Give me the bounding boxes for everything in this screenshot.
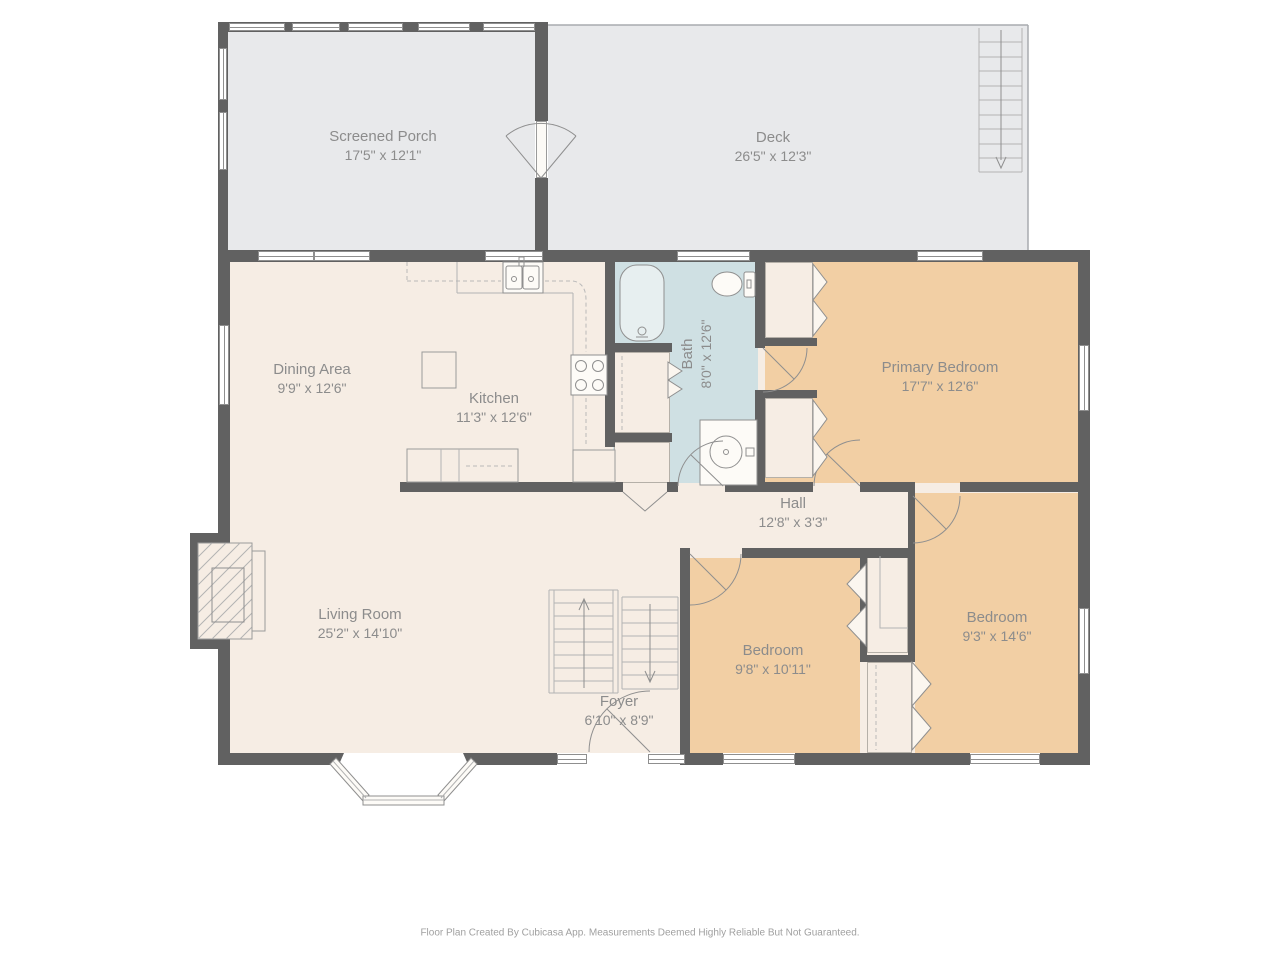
hall-opening-mark (623, 492, 667, 511)
bathroom-sink-icon (700, 420, 757, 485)
label-bedroom-right: Bedroom 9'3" x 14'6" (963, 608, 1032, 646)
room-dims: 8'0" x 12'6" (697, 320, 716, 389)
label-living-room: Living Room 25'2" x 14'10" (318, 605, 403, 643)
room-dims: 25'2" x 14'10" (318, 624, 403, 643)
vestibule-door-swing (763, 348, 807, 392)
room-dims: 17'7" x 12'6" (882, 377, 999, 396)
room-name: Bath (678, 320, 697, 389)
stove-icon (571, 355, 607, 395)
room-name: Bedroom (963, 608, 1032, 627)
room-dims: 9'8" x 10'11" (735, 660, 811, 679)
closet-shelf (880, 556, 908, 628)
label-dining: Dining Area 9'9" x 12'6" (273, 360, 351, 398)
room-name: Primary Bedroom (882, 358, 999, 377)
room-name: Hall (759, 494, 828, 513)
label-deck: Deck 26'5" x 12'3" (735, 128, 812, 166)
toilet-icon (712, 272, 755, 297)
room-name: Living Room (318, 605, 403, 624)
symbols-layer (0, 0, 1280, 960)
room-dims: 26'5" x 12'3" (735, 147, 812, 166)
room-dims: 9'9" x 12'6" (273, 379, 351, 398)
room-name: Bedroom (735, 641, 811, 660)
room-dims: 17'5" x 12'1" (329, 146, 437, 165)
porch-door-swing (506, 123, 576, 178)
bedroom-right-door-swing (913, 496, 960, 543)
bay-window (327, 753, 480, 805)
fridge-icon (422, 352, 456, 388)
bedroom-mid-door-swing (690, 554, 741, 605)
room-dims: 11'3" x 12'6" (456, 408, 532, 427)
label-primary-bedroom: Primary Bedroom 17'7" x 12'6" (882, 358, 999, 396)
label-kitchen: Kitchen 11'3" x 12'6" (456, 389, 532, 427)
room-name: Foyer (585, 692, 654, 711)
room-name: Kitchen (456, 389, 532, 408)
bathtub-icon (620, 265, 664, 341)
kitchen-sink-icon (503, 257, 543, 293)
room-name: Screened Porch (329, 127, 437, 146)
room-name: Dining Area (273, 360, 351, 379)
room-name: Deck (735, 128, 812, 147)
label-screened-porch: Screened Porch 17'5" x 12'1" (329, 127, 437, 165)
label-foyer: Foyer 6'10" x 8'9" (585, 692, 654, 730)
deck-stairs-down-icon (979, 28, 1022, 172)
room-dims: 12'8" x 3'3" (759, 513, 828, 532)
fireplace-icon (198, 543, 265, 639)
kitchen-island (407, 449, 518, 482)
room-dims: 9'3" x 14'6" (963, 627, 1032, 646)
label-bath: Bath 8'0" x 12'6" (678, 320, 716, 389)
stairs-down-icon (622, 597, 678, 689)
floor-plan: Screened Porch 17'5" x 12'1" Deck 26'5" … (0, 0, 1280, 960)
footer-disclaimer: Floor Plan Created By Cubicasa App. Meas… (420, 928, 859, 939)
stairs-up-icon (549, 590, 618, 693)
label-bedroom-mid: Bedroom 9'8" x 10'11" (735, 641, 811, 679)
room-dims: 6'10" x 8'9" (585, 711, 654, 730)
label-hall: Hall 12'8" x 3'3" (759, 494, 828, 532)
